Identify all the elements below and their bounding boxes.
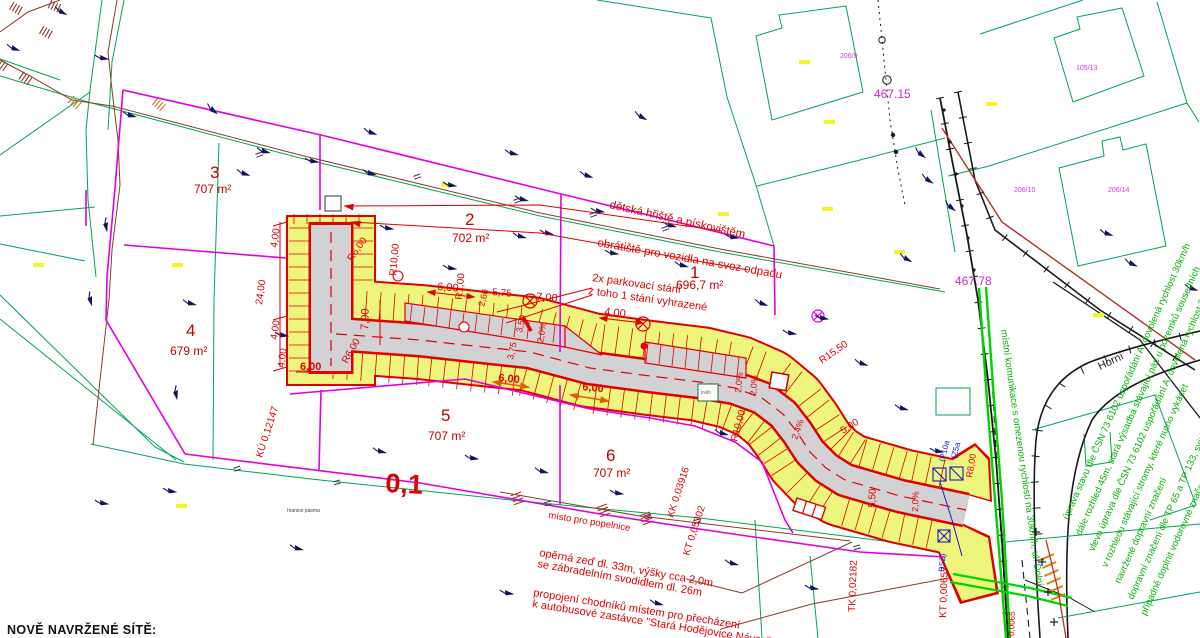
svg-text:6,00: 6,00 bbox=[437, 281, 459, 294]
svg-text:707 m²: 707 m² bbox=[593, 466, 630, 480]
svg-text:7,00: 7,00 bbox=[536, 291, 558, 305]
svg-text:6,00: 6,00 bbox=[582, 381, 605, 395]
svg-text:BSZ): BSZ) bbox=[937, 553, 948, 572]
svg-text:0,1: 0,1 bbox=[385, 468, 424, 500]
svg-text:696,7 m²: 696,7 m² bbox=[676, 278, 723, 292]
svg-text:6,00: 6,00 bbox=[300, 361, 321, 373]
svg-text:0,0065: 0,0065 bbox=[1007, 611, 1017, 636]
svg-text:KT 0,00657: KT 0,00657 bbox=[938, 566, 951, 618]
svg-text:707 m²: 707 m² bbox=[428, 429, 465, 443]
svg-text:5,75: 5,75 bbox=[492, 287, 513, 300]
svg-text:467.15: 467.15 bbox=[874, 87, 911, 101]
svg-text:2,0%: 2,0% bbox=[910, 491, 921, 512]
svg-text:2,0%: 2,0% bbox=[733, 372, 745, 393]
svg-text:467.78: 467.78 bbox=[955, 274, 992, 288]
svg-text:5: 5 bbox=[441, 406, 450, 425]
svg-text:4: 4 bbox=[186, 321, 195, 340]
svg-text:2,0%: 2,0% bbox=[748, 375, 760, 396]
svg-text:4,00: 4,00 bbox=[604, 306, 627, 320]
svg-text:6: 6 bbox=[606, 446, 615, 465]
svg-text:6,00: 6,00 bbox=[498, 372, 521, 386]
svg-text:206/14: 206/14 bbox=[1108, 187, 1130, 194]
svg-text:206/9: 206/9 bbox=[840, 53, 858, 60]
svg-text:105/13: 105/13 bbox=[1076, 65, 1098, 72]
svg-text:3: 3 bbox=[210, 163, 219, 182]
svg-text:7,00: 7,00 bbox=[359, 308, 372, 330]
svg-text:2: 2 bbox=[465, 210, 474, 229]
svg-text:5,50: 5,50 bbox=[867, 488, 879, 508]
svg-text:679 m²: 679 m² bbox=[170, 344, 207, 358]
svg-text:hranice pásma: hranice pásma bbox=[287, 508, 320, 514]
svg-text:TK 0,02182: TK 0,02182 bbox=[847, 560, 860, 612]
svg-text:NOVĚ NAVRŽENÉ SÍTĚ:: NOVĚ NAVRŽENÉ SÍTĚ: bbox=[7, 622, 157, 637]
svg-text:trafo: trafo bbox=[701, 390, 711, 396]
svg-text:707 m²: 707 m² bbox=[194, 182, 231, 196]
svg-text:702 m²: 702 m² bbox=[452, 231, 489, 245]
svg-text:206/10: 206/10 bbox=[1014, 187, 1036, 194]
